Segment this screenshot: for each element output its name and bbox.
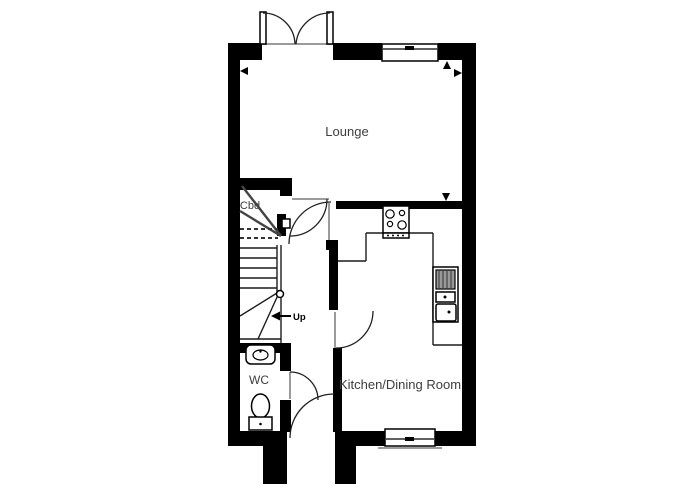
hob-body — [383, 206, 409, 233]
wall-bottom-wc — [228, 431, 287, 446]
sink-drain — [448, 311, 451, 314]
french-door-arc-right — [296, 13, 330, 44]
wall-left — [228, 43, 240, 446]
wall-kitchen-left-jamb — [326, 240, 338, 250]
basin-body — [246, 345, 275, 364]
window-bottom-tick — [405, 437, 414, 441]
floorplan-drawing: Lounge Kitchen/Dining Room WC Cbd Up — [0, 0, 700, 500]
basin-symbol — [246, 345, 275, 364]
front-door-arc — [290, 394, 334, 438]
up-arrow-head — [271, 312, 280, 321]
porch-post-left — [263, 446, 287, 484]
dimension-marker-right-icon — [454, 69, 462, 77]
french-doors — [260, 12, 333, 44]
window-top-tick — [405, 46, 414, 50]
sink-bowl-large — [436, 304, 456, 321]
hob-knob — [402, 235, 404, 237]
window-bottom — [378, 429, 442, 448]
wall-kitchen-left-upper — [329, 250, 338, 310]
dimension-marker-left-icon — [240, 67, 248, 75]
wall-top-left — [228, 43, 262, 60]
cupboard-diagonal-2 — [240, 211, 281, 236]
wall-bottom-kitchen-left — [335, 431, 385, 446]
wall-bottom-kitchen-right — [435, 431, 476, 446]
cupboard-door-stop — [282, 219, 290, 228]
wall-wc-right-lower — [280, 400, 291, 432]
wall-wc-right-upper — [280, 343, 291, 371]
porch-post-right — [335, 446, 356, 484]
room-label-wc: WC — [249, 373, 269, 387]
wall-cupboard-top — [228, 178, 282, 190]
hob-knob — [387, 235, 389, 237]
room-label-cupboard: Cbd — [240, 200, 260, 212]
wall-top-mid — [333, 43, 382, 60]
kitchen-south-door-arc — [336, 311, 373, 348]
stair-winder-1 — [240, 293, 277, 316]
wall-cupboard-stub — [280, 178, 292, 196]
window-top — [382, 44, 438, 61]
toilet-symbol — [249, 394, 272, 430]
toilet-flush — [259, 423, 262, 426]
dimension-marker-top-icon — [443, 61, 451, 69]
hob-controls — [383, 233, 409, 238]
french-door-leaf-right — [327, 12, 333, 44]
hob-symbol — [383, 206, 409, 238]
floorplan-canvas: Lounge Kitchen/Dining Room WC Cbd Up — [0, 0, 700, 500]
french-door-leaf-left — [260, 12, 266, 44]
hob-knob — [392, 235, 394, 237]
hob-knob — [397, 235, 399, 237]
wc-fixtures — [246, 345, 275, 430]
kitchen-north-door-arc — [289, 202, 331, 244]
kitchen-fittings — [338, 206, 462, 345]
sink-symbol — [433, 267, 458, 322]
cupboard-door-arc — [290, 199, 327, 236]
room-label-lounge: Lounge — [325, 124, 368, 139]
wall-right — [462, 43, 476, 446]
basin-tap — [259, 350, 261, 352]
stairs-up-label: Up — [293, 312, 306, 323]
dimension-marker-kitchen-icon — [442, 193, 450, 201]
stair-newel-post — [277, 291, 284, 298]
french-door-arc-left — [263, 13, 295, 44]
room-label-kitchen: Kitchen/Dining Room — [339, 377, 461, 392]
toilet-bowl — [252, 394, 270, 418]
sink-tap — [444, 296, 447, 299]
wc-door-arc — [290, 372, 318, 400]
